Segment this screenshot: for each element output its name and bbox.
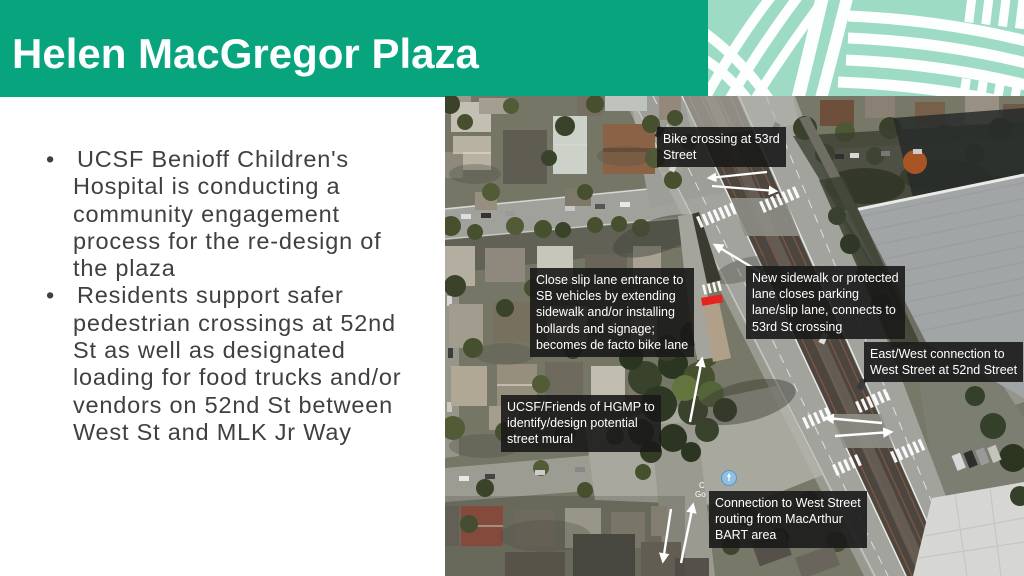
- svg-text:Go: Go: [695, 490, 706, 499]
- svg-text:C: C: [699, 481, 705, 490]
